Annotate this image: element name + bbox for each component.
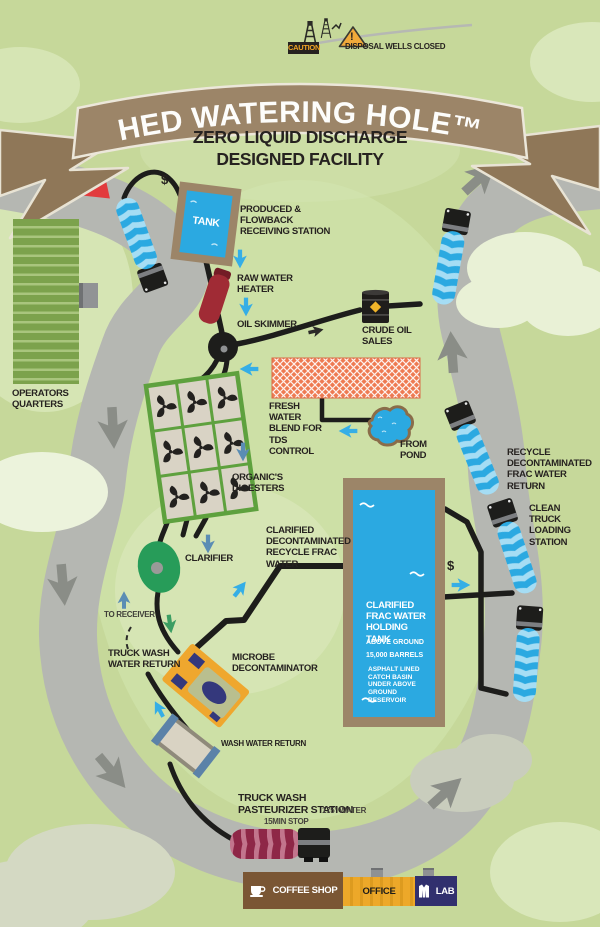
pasteurizer-stop: 15MIN STOP bbox=[264, 817, 308, 826]
fresh-water-blend-label: FRESH WATER BLEND FOR TDS CONTROL bbox=[269, 401, 333, 457]
subtitle-line2: DESIGNED FACILITY bbox=[150, 149, 450, 170]
truck-wash-return-label: TRUCK WASH WATER RETURN bbox=[108, 648, 193, 670]
clean-truck-loading-label: CLEAN TRUCK LOADING STATION bbox=[529, 503, 577, 548]
oil-skimmer bbox=[208, 332, 238, 362]
office-building: OFFICE bbox=[343, 877, 415, 906]
coffee-shop-building: COFFEE SHOP bbox=[243, 872, 343, 909]
oil-skimmer-label: OIL SKIMMER bbox=[237, 319, 297, 330]
coffee-shop-label: COFFEE SHOP bbox=[273, 885, 338, 896]
holding-tank-line1: ABOVE GROUND bbox=[366, 639, 424, 647]
operators-quarters-building bbox=[13, 219, 79, 384]
loading-fee-sign: $ bbox=[447, 558, 454, 573]
organics-digesters bbox=[146, 373, 256, 521]
operators-quarters-door bbox=[79, 283, 98, 308]
crude-oil-sales-label: CRUDE OIL SALES bbox=[362, 325, 424, 347]
microbe-decontaminator-label: MICROBE DECONTAMINATOR bbox=[232, 652, 327, 674]
holding-tank-line2: 15,000 BARRELS bbox=[366, 652, 423, 660]
fresh-water-blend-basin bbox=[272, 358, 420, 398]
operators-quarters-label: OPERATORS QUARTERS bbox=[12, 388, 72, 410]
pasteurizer-line1: TRUCK WASH bbox=[238, 792, 306, 804]
facility-map: HED WATERING HOLE™ CAUTION ! DISPOSAL WE… bbox=[0, 0, 600, 927]
raw-water-heater-label: RAW WATER HEATER bbox=[237, 273, 301, 295]
pasteurizer-truck bbox=[230, 828, 330, 862]
lab-label: LAB bbox=[436, 886, 455, 897]
wash-water-return-label: WASH WATER RETURN bbox=[221, 739, 306, 748]
holding-tank-line3: ASPHALT LINED CATCH BASIN UNDER ABOVE GR… bbox=[368, 666, 426, 704]
warning-label: DISPOSAL WELLS CLOSED bbox=[345, 42, 445, 51]
caution-sign-label: CAUTION bbox=[288, 44, 319, 53]
pasteurizer-temp: 175° WATER bbox=[322, 806, 366, 815]
clarified-water-label: CLARIFIED DECONTAMINATED RECYCLE FRAC WA… bbox=[266, 525, 354, 570]
lab-building: LAB bbox=[415, 876, 457, 906]
from-pond-label: FROM POND bbox=[400, 439, 444, 461]
recycle-return-label: RECYCLE DECONTAMINATED FRAC WATER RETURN bbox=[507, 447, 587, 492]
office-label: OFFICE bbox=[362, 886, 395, 897]
coffee-cup-icon bbox=[249, 883, 267, 898]
to-receiver-label: TO RECEIVER bbox=[104, 610, 155, 619]
truck-fee-sign: $ bbox=[161, 172, 168, 187]
lab-coat-icon bbox=[418, 884, 430, 898]
clarifier-label: CLARIFIER bbox=[185, 553, 233, 564]
oil-barrel-icon bbox=[362, 290, 389, 323]
subtitle-line1: ZERO LIQUID DISCHARGE bbox=[150, 127, 450, 148]
receiving-station-label: PRODUCED & FLOWBACK RECEIVING STATION bbox=[240, 204, 335, 238]
organics-digesters-label: ORGANIC'S DIGESTERS bbox=[232, 472, 300, 494]
